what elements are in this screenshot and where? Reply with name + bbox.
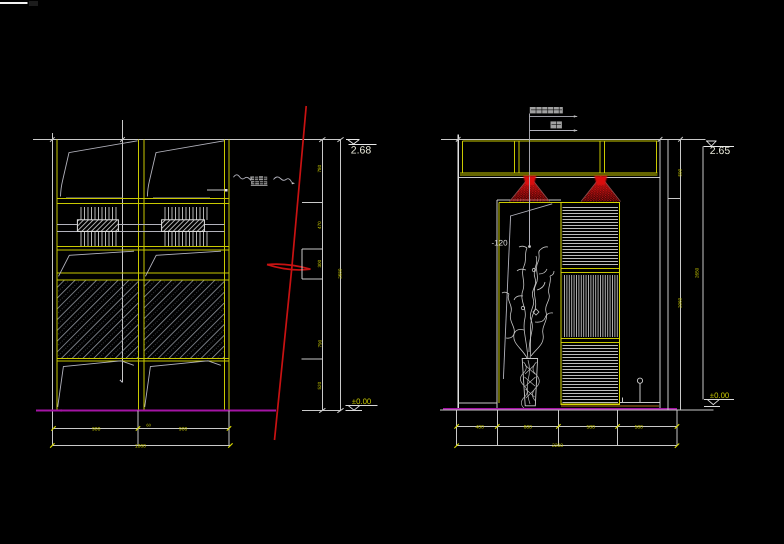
svg-text:300: 300 — [317, 259, 322, 267]
svg-text:900: 900 — [179, 426, 188, 432]
svg-text:2680: 2680 — [338, 268, 343, 279]
svg-text:60: 60 — [146, 423, 151, 428]
svg-text:520: 520 — [317, 381, 322, 389]
svg-text:1860: 1860 — [135, 444, 146, 450]
svg-text:-120: -120 — [492, 239, 509, 248]
svg-text:400: 400 — [476, 424, 485, 430]
svg-text:2.68: 2.68 — [351, 145, 372, 157]
svg-text:2200: 2200 — [552, 443, 563, 449]
svg-text:470: 470 — [317, 221, 322, 229]
svg-text:900: 900 — [92, 426, 101, 432]
svg-text:±0.00: ±0.00 — [710, 391, 730, 400]
svg-text:2060: 2060 — [678, 297, 683, 308]
svg-text:580: 580 — [635, 424, 644, 430]
svg-text:580: 580 — [587, 424, 596, 430]
svg-text:790: 790 — [318, 339, 323, 347]
svg-text:2.65: 2.65 — [710, 145, 731, 157]
svg-text:2650: 2650 — [695, 267, 700, 278]
svg-text:600: 600 — [524, 424, 533, 430]
svg-text:±0.00: ±0.00 — [352, 397, 372, 406]
svg-text:780: 780 — [317, 164, 322, 172]
svg-text:590: 590 — [678, 168, 683, 176]
